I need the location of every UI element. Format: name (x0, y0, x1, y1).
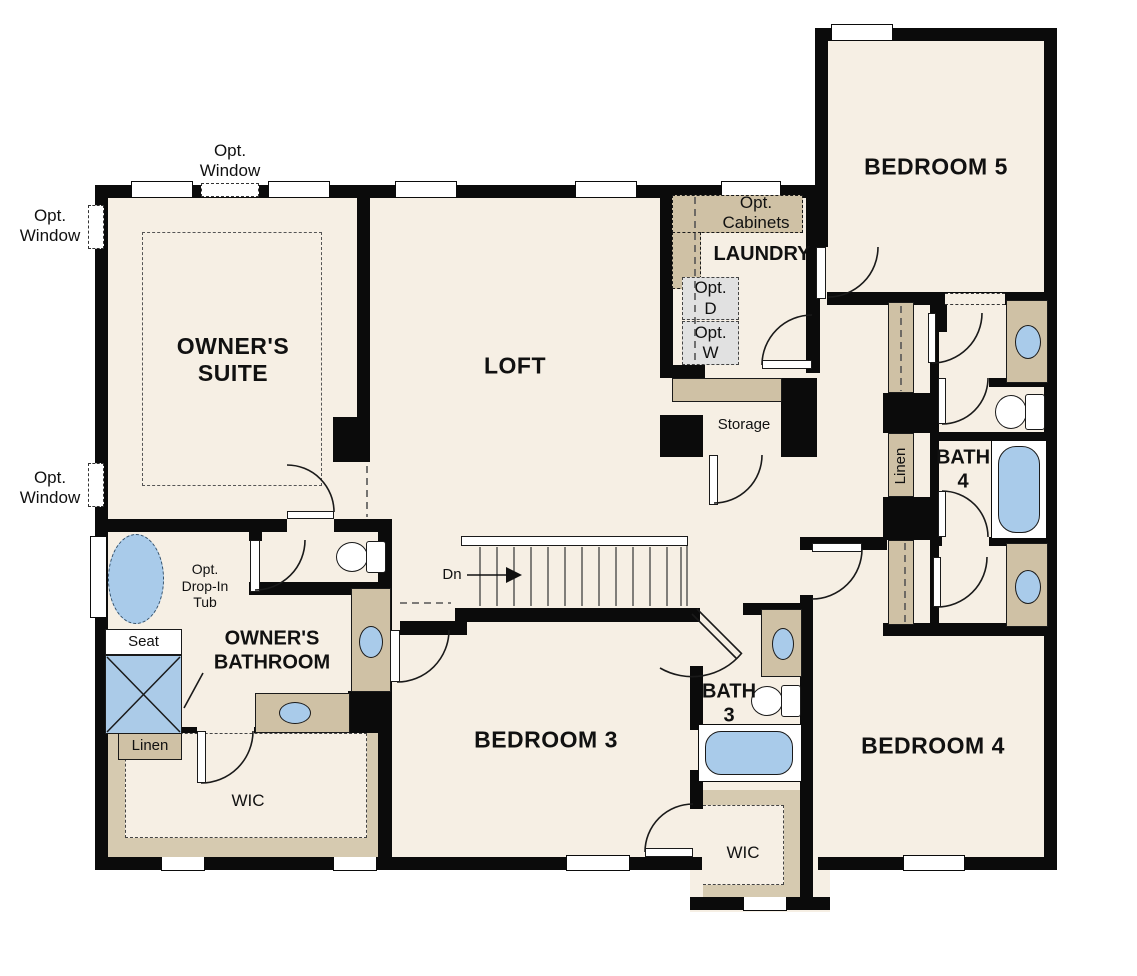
window (575, 181, 637, 198)
stair-railing (461, 536, 688, 546)
label-owners-bathroom: OWNER'S BATHROOM (214, 627, 330, 674)
window (743, 895, 787, 911)
label-opt-window-top: Opt. Window (200, 141, 260, 181)
wall (883, 393, 935, 433)
optional-washer-label: Opt. W (694, 323, 726, 363)
toilet (336, 542, 368, 572)
sink (772, 628, 794, 660)
window (268, 181, 330, 198)
toilet (995, 395, 1027, 429)
toilet-tank (1025, 394, 1045, 430)
door-leaf (197, 731, 206, 783)
label-bath3: BATH 3 (702, 680, 756, 727)
toilet-tank (781, 685, 801, 717)
optional-window (88, 463, 104, 507)
closet-shelf (888, 540, 914, 625)
label-opt-drop-in-tub: Opt. Drop-In Tub (182, 561, 229, 611)
door-leaf (250, 540, 260, 592)
bathtub (998, 446, 1040, 533)
window (566, 855, 630, 871)
door-leaf (390, 630, 400, 682)
door-leaf (762, 360, 812, 369)
optional-opening (945, 293, 1005, 305)
label-bedroom4: BEDROOM 4 (861, 732, 1005, 759)
label-owners-suite: OWNER'S SUITE (177, 333, 289, 387)
wall (781, 378, 817, 457)
optional-dryer-label: Opt. D (694, 278, 726, 318)
label-laundry: LAUNDRY (713, 243, 810, 267)
door-leaf (938, 491, 946, 537)
window (395, 181, 457, 198)
door-leaf (812, 543, 862, 552)
optional-drop-in-tub (108, 534, 164, 624)
shower (105, 655, 182, 734)
label-loft: LOFT (484, 352, 546, 379)
window (90, 536, 107, 618)
sink (359, 626, 383, 658)
label-opt-cabinets: Opt. Cabinets (722, 193, 789, 233)
label-linen-closet: Linen (892, 448, 910, 485)
wall (455, 608, 700, 622)
optional-window (201, 183, 259, 197)
window (831, 24, 893, 41)
label-bedroom3: BEDROOM 3 (474, 726, 618, 753)
wall (660, 415, 703, 457)
label-opt-window-left-2: Opt. Window (20, 468, 80, 508)
window (903, 855, 965, 871)
wall (930, 537, 942, 546)
floor-plan: Opt. D Opt. W Seat (0, 0, 1137, 976)
label-bedroom5: BEDROOM 5 (864, 153, 1008, 180)
door-leaf (287, 511, 334, 519)
label-linen-owner: Linen (132, 737, 169, 755)
label-storage: Storage (718, 416, 771, 434)
label-wic-bedroom: WIC (726, 843, 759, 863)
optional-dryer: Opt. D (682, 277, 739, 320)
optional-washer: Opt. W (682, 321, 739, 365)
seat-label: Seat (128, 633, 159, 651)
shower-seat: Seat (105, 629, 182, 655)
wall (357, 197, 370, 425)
label-wic-owner: WIC (231, 791, 264, 811)
door-leaf (709, 455, 718, 505)
sink (1015, 570, 1041, 604)
sink (1015, 325, 1041, 359)
toilet-tank (366, 541, 386, 573)
window (131, 181, 193, 198)
door-leaf (933, 557, 941, 607)
wall (333, 417, 370, 462)
window (333, 855, 377, 871)
wall (883, 497, 935, 540)
door-leaf (816, 247, 826, 299)
wall (249, 519, 262, 541)
storage-shelf (672, 378, 782, 402)
wall (400, 621, 467, 635)
label-down: Dn (442, 566, 461, 584)
label-opt-window-left-1: Opt. Window (20, 206, 80, 246)
door-leaf (938, 378, 946, 424)
wall (660, 365, 705, 378)
sink (279, 702, 311, 724)
closet-shelf (888, 302, 914, 393)
label-bath4: BATH 4 (936, 446, 990, 493)
optional-window (88, 205, 104, 249)
window (161, 855, 205, 871)
bathtub (705, 731, 793, 775)
door-leaf (928, 313, 936, 363)
wall (800, 782, 813, 910)
door-leaf (645, 848, 693, 857)
